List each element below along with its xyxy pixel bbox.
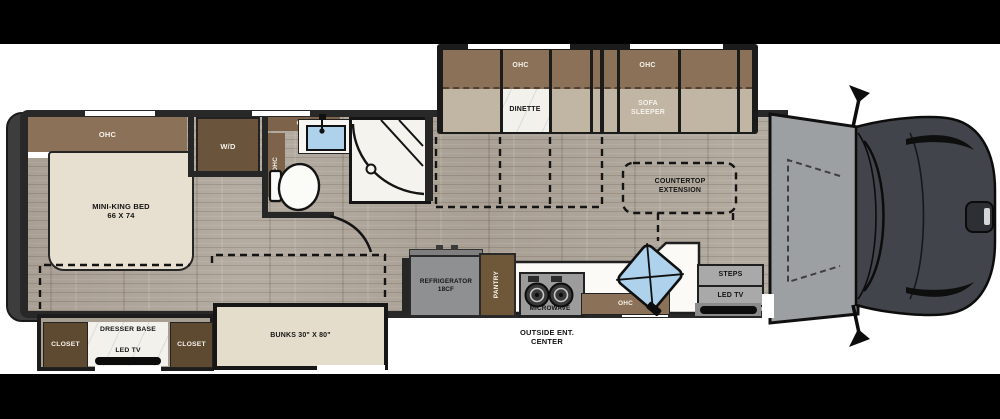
- bedroom-ohc-label: OHC: [99, 130, 116, 139]
- microwave-label-area: MICROWAVE: [519, 303, 581, 314]
- bedroom-tv-bar: [95, 357, 161, 365]
- cushion-divider-3: [590, 50, 593, 132]
- wall-right-of-shower: [425, 117, 433, 201]
- mini-king-bed: MINI-KING BED 66 X 74: [48, 151, 194, 271]
- grille: [966, 202, 993, 232]
- pantry: PANTRY: [479, 253, 516, 317]
- wall-bed-wd: [188, 117, 194, 173]
- washer-dryer-label: W/D: [220, 142, 235, 151]
- top-mask-bar: [0, 0, 1000, 44]
- windshield-inner-line: [858, 133, 876, 299]
- headlight-left: [906, 135, 974, 150]
- steps-box: STEPS: [697, 264, 764, 287]
- bunks-bed: BUNKS 30" X 80": [217, 307, 384, 366]
- floorplan-canvas: OHC MINI-KING BED 66 X 74 W/D OHC OHC OH…: [0, 0, 1000, 419]
- shower-stall: [349, 117, 431, 204]
- dresser-base-label: DRESSER BASE: [100, 326, 156, 334]
- bedroom-led-tv-label: LED TV: [115, 347, 140, 355]
- outside-ent-label-2: CENTER: [531, 337, 563, 346]
- windshield-line: [864, 141, 884, 291]
- sofa-label-2: SLEEPER: [631, 109, 665, 118]
- cabover-dashed-outline: [788, 160, 840, 282]
- cushion-divider-6: [737, 50, 740, 132]
- mirror-arm-bottom: [853, 305, 859, 333]
- truck-body: [856, 117, 995, 315]
- dresser-base-label-area: DRESSER BASE: [88, 325, 168, 335]
- dinette-ohc: OHC: [473, 58, 568, 74]
- wall-left-of-fridge: [402, 258, 409, 313]
- bedroom-window-left: [28, 152, 50, 158]
- slideout-window-2: [630, 44, 723, 49]
- bed-name-label: MINI-KING BED: [92, 202, 150, 211]
- refrigerator-label-2: 18CF: [438, 286, 454, 294]
- mirror-arm-top: [853, 99, 859, 127]
- entry-led-tv-label: LED TV: [717, 292, 743, 301]
- hood-line: [910, 133, 924, 299]
- entry-door-gap: [762, 294, 774, 318]
- kitchen-ohc-label: OHC: [618, 300, 633, 308]
- bed-size-label: 66 X 74: [107, 211, 134, 220]
- bunks-slide-window: [317, 365, 385, 370]
- mirror-head-bottom: [849, 329, 870, 347]
- closet-right-label: CLOSET: [177, 341, 206, 349]
- dinette-label: DINETTE: [509, 106, 540, 115]
- steps-label: STEPS: [719, 271, 743, 280]
- sofa-label-1: SOFA: [638, 100, 658, 109]
- bunks-label: BUNKS 30" X 80": [270, 332, 331, 341]
- sofa-ohc: OHC: [600, 58, 695, 74]
- closet-left-label: CLOSET: [51, 341, 80, 349]
- bedroom-ohc-cabinet: OHC: [28, 117, 187, 153]
- bath-ohc-side: OHC: [268, 133, 285, 197]
- outside-ent-label-1: OUTSIDE ENT.: [520, 328, 574, 337]
- kitchen-ohc: OHC: [581, 293, 670, 315]
- entry-step-bar: [700, 306, 757, 314]
- closet-left: CLOSET: [43, 322, 88, 368]
- countertop-label-2: EXTENSION: [659, 187, 701, 196]
- wall-under-wd: [188, 171, 268, 177]
- sofa-sleeper: SOFA SLEEPER: [598, 93, 698, 125]
- dinette-ohc-label: OHC: [512, 62, 528, 71]
- countertop-extension: COUNTERTOP EXTENSION: [625, 167, 735, 207]
- sofa-ohc-label: OHC: [639, 62, 655, 71]
- bath-ohc-side-label: OHC: [272, 157, 280, 172]
- window-top-2: [252, 111, 310, 116]
- wardrobe-slide-window: [95, 366, 161, 371]
- outside-ent-caption: OUTSIDE ENT. CENTER: [497, 325, 597, 349]
- closet-right: CLOSET: [170, 322, 213, 368]
- washer-dryer: W/D: [196, 117, 260, 177]
- bath-sink: [306, 125, 346, 151]
- bottom-mask-bar: [0, 374, 1000, 419]
- grille-slot: [984, 208, 990, 225]
- refrigerator: REFRIGERATOR 18CF: [409, 255, 483, 317]
- microwave-label: MICROWAVE: [530, 305, 571, 313]
- bedroom-led-tv-label-area: LED TV: [88, 346, 168, 356]
- pantry-label: PANTRY: [493, 271, 501, 298]
- countertop-label-1: COUNTERTOP: [655, 178, 706, 187]
- refrigerator-label-1: REFRIGERATOR: [420, 278, 472, 286]
- dinette-area: DINETTE: [499, 89, 551, 132]
- headlight-right: [906, 282, 974, 297]
- mirror-head-top: [849, 85, 870, 103]
- window-top-1: [85, 111, 155, 116]
- bath-wall-bottom: [262, 212, 334, 218]
- slideout-window-1: [468, 44, 570, 49]
